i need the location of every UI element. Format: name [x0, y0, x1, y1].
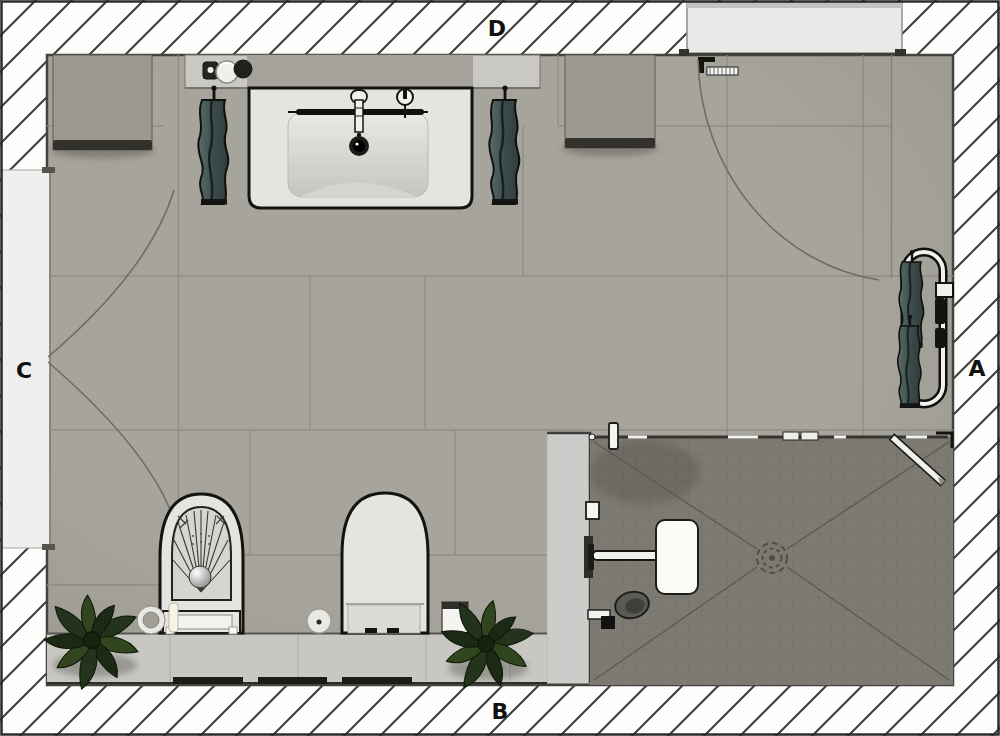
bench-left[interactable]: [51, 55, 155, 158]
floor-plan-canvas: D B C A: [0, 0, 1000, 736]
towel-right[interactable]: [489, 85, 519, 204]
column-towel-lower: [898, 315, 922, 408]
candle[interactable]: [169, 603, 178, 632]
wall-label-left: C: [16, 358, 32, 383]
shower-partition-wall: [547, 432, 590, 683]
sink[interactable]: [249, 88, 472, 208]
toilet-paper-holder[interactable]: [307, 609, 331, 633]
wall-label-top: D: [488, 16, 506, 41]
shower-shelf[interactable]: [656, 520, 698, 594]
shower-control-box[interactable]: [586, 502, 599, 519]
bathroom-floor-plan: D B C A: [0, 0, 1000, 736]
towel-left[interactable]: [198, 85, 228, 204]
toilet[interactable]: [342, 493, 428, 633]
shower-door-handle[interactable]: [609, 423, 618, 449]
wall-label-bottom: B: [492, 699, 509, 724]
wall-label-right: A: [968, 356, 985, 381]
bench-right[interactable]: [562, 55, 658, 156]
ledge-vent-slots: [173, 677, 412, 684]
shower-area[interactable]: [547, 423, 953, 685]
vanity-counter[interactable]: [185, 55, 540, 88]
